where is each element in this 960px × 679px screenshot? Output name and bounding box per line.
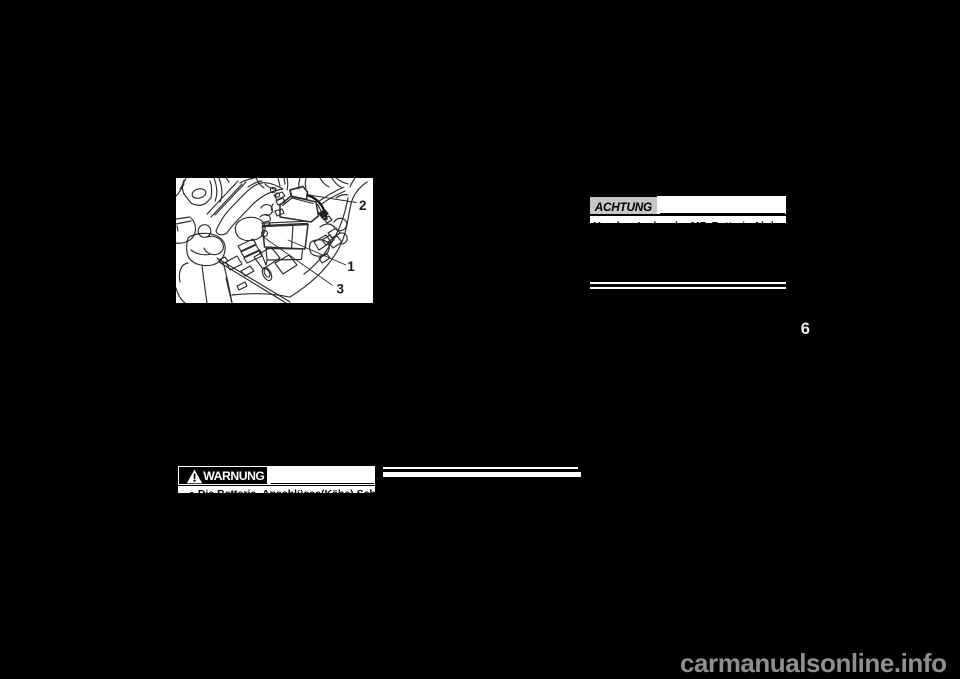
svg-text:3: 3 (337, 282, 345, 297)
svg-text:2: 2 (359, 198, 367, 213)
svg-text:1: 1 (347, 259, 355, 274)
